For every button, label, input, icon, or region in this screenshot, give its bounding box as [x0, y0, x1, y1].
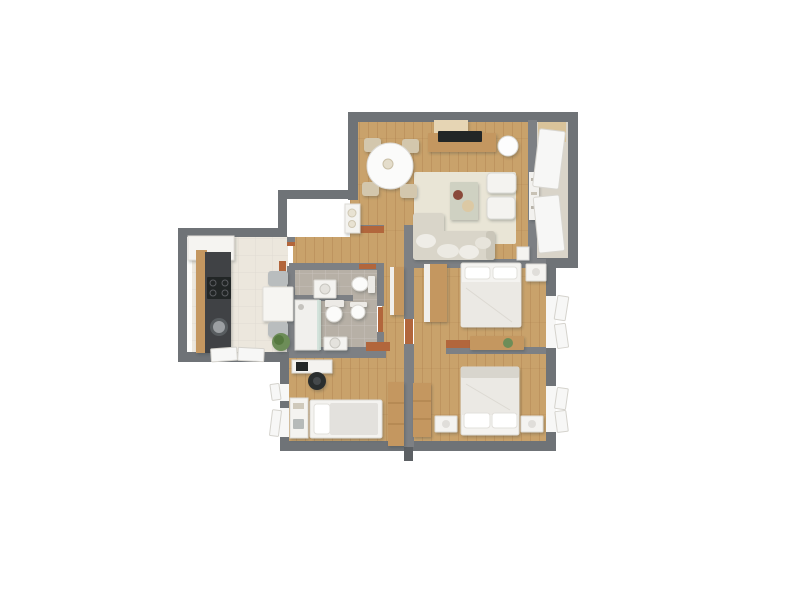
armchair-1	[487, 173, 516, 193]
table-centerpiece	[383, 159, 393, 169]
corner-unit	[517, 247, 529, 260]
console-table	[345, 204, 360, 233]
kitchen-chair-1	[268, 271, 288, 286]
wardrobe-kids	[388, 382, 404, 446]
wall-hall-bedroom1-upper	[404, 225, 414, 319]
pillow-1	[465, 267, 490, 279]
window-bedroom-right-leaf-2	[554, 323, 568, 348]
door-wc	[359, 264, 376, 269]
dresser-plant	[503, 338, 513, 348]
dining-chair-4	[400, 184, 417, 198]
wall-kids-top	[289, 350, 386, 358]
single-bed-mattress	[330, 403, 378, 435]
nightstand-left-decor	[442, 420, 450, 428]
bidet	[351, 305, 365, 319]
washbasin	[330, 338, 340, 348]
floor-plan-render	[0, 0, 800, 600]
pillow-3	[464, 413, 490, 428]
window-bedroom-right-leaf-1	[554, 295, 569, 320]
sofa-pillow-2	[437, 244, 459, 258]
nightstand-decor	[532, 268, 540, 276]
shower-drain	[298, 304, 304, 310]
pillow-4	[492, 413, 517, 428]
wall-step-top	[278, 190, 358, 199]
shelf-unit-item-1	[293, 403, 304, 409]
door-bedroom-right	[405, 319, 413, 344]
door-threshold-kids	[386, 350, 405, 359]
door-bathroom	[378, 307, 383, 332]
coffee-table-decor-2	[462, 200, 474, 212]
wardrobe-door-face	[424, 264, 430, 322]
floor-lamp	[498, 136, 518, 156]
sofa-pillow-4	[475, 237, 491, 249]
wc-toilet	[352, 277, 368, 291]
table-for-two	[263, 287, 293, 321]
dresser	[470, 336, 524, 350]
wall-balcony-right	[568, 112, 578, 268]
wall-kitchen-left	[178, 228, 187, 361]
window-kitchen-leaf-2	[238, 347, 265, 361]
window-kids-lower-leaf	[269, 410, 281, 437]
window-bedroom2-leaf-2	[555, 410, 568, 432]
folded-blanket	[461, 367, 519, 378]
wall-bath-right-upper	[377, 263, 384, 306]
pillow-2	[493, 267, 517, 279]
door-threshold-bedroom2	[414, 347, 446, 355]
sofa-pillow-3	[459, 245, 479, 259]
tv	[438, 131, 482, 142]
window-bedroom2-leaf-1	[555, 387, 569, 409]
floor-plan-canvas	[0, 0, 800, 600]
console-decor-2	[349, 221, 356, 228]
wall-living-left	[348, 112, 358, 200]
window-kitchen-leaf-1	[211, 347, 238, 362]
shower-glass	[317, 300, 321, 350]
counter-run	[205, 252, 231, 353]
nightstand-right-decor	[528, 420, 536, 428]
wc-washbasin	[320, 284, 330, 294]
armchair-2	[487, 197, 515, 219]
cooktop	[207, 277, 231, 299]
hall-cabinet-face	[390, 267, 394, 315]
coffee-table	[450, 182, 478, 220]
single-bed-pillow	[314, 404, 330, 434]
round-sink-basin	[213, 321, 225, 333]
toilet	[326, 306, 342, 322]
potted-plant-inner	[274, 335, 284, 345]
wall-kitchen-right-stub	[287, 237, 295, 242]
wardrobe-2	[413, 383, 431, 437]
desk-chair-seat	[313, 377, 321, 385]
wall-stub-below	[404, 447, 413, 461]
door-kitchen-frame	[287, 242, 295, 246]
window-kids-upper-leaf	[270, 383, 281, 400]
wall-hall-bedroom1-lower-and-divider	[404, 344, 414, 447]
sofa-pillow-1	[416, 234, 436, 248]
wall-bottom	[280, 441, 556, 451]
desk-monitor	[296, 362, 308, 371]
duvet	[461, 282, 521, 327]
shelf-item-2	[531, 192, 537, 195]
wc-toilet-tank	[368, 276, 375, 293]
duvet-2	[461, 378, 519, 415]
window-panel-2	[533, 195, 565, 253]
hallway-floor-wide	[293, 237, 404, 265]
window-bedroom-right-opening	[546, 296, 556, 348]
door-kids-room	[366, 342, 390, 351]
console-decor-1	[348, 209, 356, 217]
window-bedroom2-opening	[546, 386, 556, 432]
coffee-table-decor-1	[453, 190, 463, 200]
shelf-unit-item-2	[293, 419, 304, 429]
